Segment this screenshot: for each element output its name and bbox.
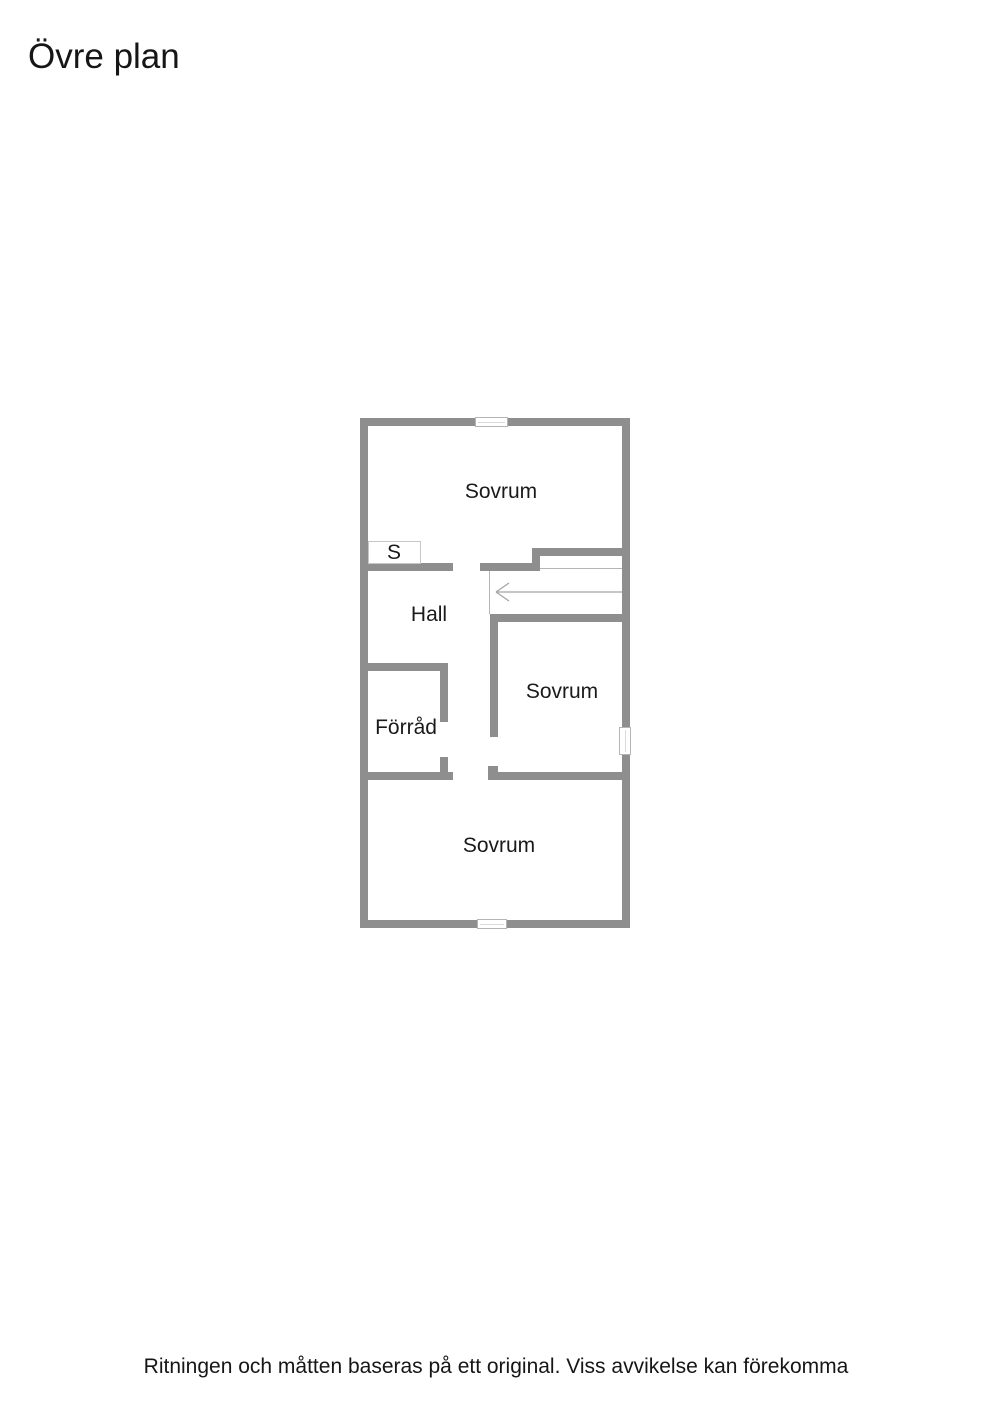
room-label-sovrum-top: Sovrum <box>465 480 537 504</box>
wall-outer-left <box>360 418 368 928</box>
window-top <box>475 417 508 427</box>
room-label-forrad: Förråd <box>375 716 437 740</box>
stair-tread-line <box>540 568 622 569</box>
room-label-closet: S <box>387 541 401 565</box>
room-label-sovrum-mid: Sovrum <box>526 680 598 704</box>
floor-plan: Sovrum S Hall Förråd Sovrum Sovrum <box>360 418 630 928</box>
wall-bottom-right-stub <box>488 766 498 772</box>
stair-direction-arrow-icon <box>490 576 622 608</box>
wall-outer-right <box>622 418 630 928</box>
room-label-sovrum-bottom: Sovrum <box>463 834 535 858</box>
window-right <box>619 727 631 755</box>
wall-forrad-right-upper <box>440 663 448 722</box>
window-bottom <box>477 919 507 929</box>
wall-bottom-left <box>360 772 453 780</box>
wall-forrad-top <box>360 663 448 671</box>
page-title: Övre plan <box>28 38 180 77</box>
wall-stair-upper <box>532 548 630 556</box>
room-label-hall: Hall <box>411 603 447 627</box>
wall-stair-bottom <box>490 614 630 622</box>
wall-stair-left <box>480 563 540 571</box>
wall-closet-bottom <box>360 563 453 571</box>
wall-hall-sovrum-divider <box>490 622 498 737</box>
wall-bottom-right <box>488 772 630 780</box>
footer-disclaimer: Ritningen och måtten baseras på ett orig… <box>0 1355 992 1379</box>
